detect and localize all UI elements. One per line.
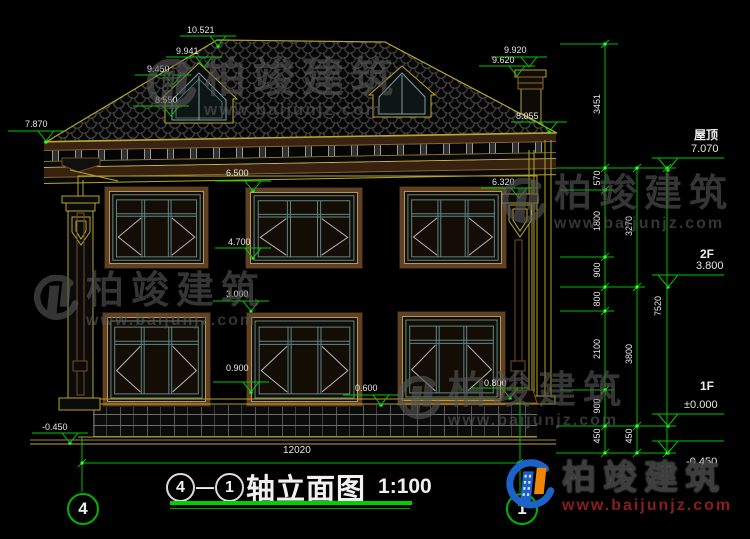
watermark-brand: 柏竣建筑 — [204, 56, 400, 100]
dim-text: 3451 — [592, 74, 602, 134]
level-flag-icon — [652, 413, 724, 427]
elevation-flag-icon — [215, 247, 271, 259]
title-underline-thin — [170, 508, 410, 509]
watermark: 柏竣建筑 www.baijunjz.com — [28, 272, 266, 330]
watermark-url: www.baijunjz.com — [204, 100, 400, 120]
axis-bubble-4: 4 — [67, 493, 99, 525]
watermark-brand: 柏竣建筑 — [86, 272, 266, 312]
elevation-value: 8.055 — [516, 111, 539, 121]
total-width-dim: 12020 — [283, 446, 311, 456]
watermark-url: www.baijunjz.com — [554, 215, 734, 233]
elevation-flag-icon — [479, 65, 535, 77]
level-value: 3.800 — [696, 260, 724, 272]
watermark-logo-colored: 柏竣建筑 www.baijunjz.com — [500, 458, 732, 518]
title-dash: — — [196, 477, 214, 498]
elevation-flag-icon — [8, 130, 64, 142]
level-label: 2F — [700, 247, 714, 261]
watermark: 柏竣建筑 www.baijunjz.com — [496, 175, 734, 233]
ground-line — [30, 440, 556, 444]
elevation-drawing-canvas: 10.521 9.941 9.450 8.550 7.870 9.920 9.6… — [0, 0, 750, 539]
elevation-value: 9.920 — [504, 45, 527, 55]
elevation-flag-icon — [511, 121, 567, 133]
elevation-flag-icon — [343, 394, 399, 406]
watermark-url: www.baijunjz.com — [562, 497, 732, 515]
elevation-value: 0.900 — [226, 363, 249, 373]
watermark-brand: 柏竣建筑 — [448, 372, 628, 412]
elevation-value: -0.450 — [42, 422, 68, 432]
level-label: 屋顶 — [694, 126, 718, 143]
level-flag-icon — [652, 440, 724, 454]
elevation-value: 4.700 — [228, 237, 251, 247]
watermark-brand: 柏竣建筑 — [562, 461, 732, 497]
watermark-logo-icon — [392, 376, 442, 426]
title-axis-end: 1 — [215, 473, 244, 502]
title-underline-thick — [170, 501, 412, 505]
elevation-value: 7.870 — [25, 119, 48, 129]
title-axis-start: 4 — [166, 473, 195, 502]
dim-text: 7520 — [653, 276, 663, 336]
title-scale: 1:100 — [378, 475, 432, 499]
cornice-end-corbel — [62, 158, 118, 181]
watermark-brand: 柏竣建筑 — [554, 175, 734, 215]
watermark-url: www.baijunjz.com — [448, 412, 628, 430]
watermark-logo-icon — [140, 59, 198, 117]
level-flag-icon — [652, 157, 724, 171]
elevation-flag-icon — [213, 381, 269, 393]
watermark-url: www.baijunjz.com — [86, 312, 266, 330]
elevation-value: 9.620 — [492, 55, 515, 65]
level-value: 7.070 — [691, 143, 719, 155]
elevation-value: 10.521 — [187, 25, 215, 35]
elevation-flag-icon — [32, 432, 88, 444]
watermark-logo-icon — [28, 275, 80, 327]
watermark: 柏竣建筑 www.baijunjz.com — [140, 56, 400, 120]
elevation-value: 0.600 — [355, 383, 378, 393]
level-value: ±0.000 — [684, 399, 718, 411]
level-label: 1F — [700, 379, 714, 393]
watermark-logo-icon — [500, 458, 556, 518]
watermark-logo-icon — [496, 178, 548, 230]
elevation-value: 9.941 — [176, 46, 199, 56]
elevation-value: 6.500 — [226, 168, 249, 178]
elevation-flag-icon — [215, 180, 271, 192]
watermark: 柏竣建筑 www.baijunjz.com — [392, 372, 628, 430]
